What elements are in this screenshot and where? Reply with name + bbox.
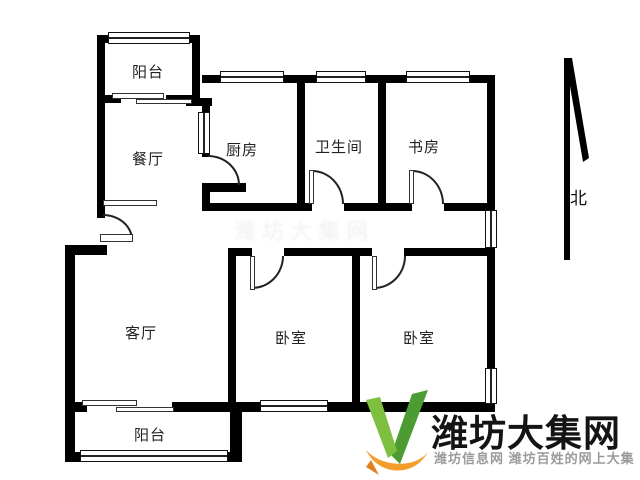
room-label-bedroom-left: 卧室	[246, 327, 336, 345]
north-label: 北	[570, 184, 600, 206]
room-label-living: 客厅	[96, 322, 186, 340]
room-label-study: 书房	[379, 136, 469, 154]
window	[406, 71, 470, 83]
door-arc	[312, 170, 344, 204]
door-leaf	[309, 170, 314, 204]
room-label-bedroom-right: 卧室	[374, 327, 464, 345]
wall	[352, 256, 360, 412]
window	[220, 71, 284, 83]
sliding-door-panel	[82, 400, 137, 406]
wall	[202, 203, 312, 211]
window	[108, 32, 190, 44]
room-label-bathroom: 卫生间	[294, 136, 384, 154]
window	[316, 71, 366, 83]
door-leaf	[100, 234, 133, 242]
sliding-door-panel	[136, 99, 192, 104]
wall	[172, 402, 235, 412]
door-arc	[252, 256, 284, 289]
faint-watermark: 潍坊大集网	[234, 214, 444, 244]
door-arc	[208, 155, 240, 185]
site-logo-icon	[364, 390, 430, 480]
window	[485, 210, 497, 248]
door-arc	[374, 256, 406, 289]
room-label-kitchen: 厨房	[197, 139, 287, 157]
door-leaf	[409, 170, 414, 204]
wall	[284, 248, 372, 256]
shelf-line	[103, 200, 157, 206]
room-label-balcony-bottom: 阳台	[105, 424, 195, 442]
door-leaf	[250, 256, 255, 290]
door-leaf	[372, 256, 377, 290]
wall	[344, 203, 412, 211]
room-label-balcony-top: 阳台	[103, 61, 193, 79]
wall	[404, 248, 495, 256]
watermark-subtitle: 潍坊信息网 潍坊百姓的网上大集	[434, 448, 635, 467]
north-arrow-icon	[552, 48, 602, 268]
sliding-door-panel	[116, 407, 174, 412]
door-arc	[412, 170, 444, 204]
wall	[65, 245, 75, 462]
wall	[192, 35, 200, 103]
room-label-dining: 餐厅	[103, 148, 193, 166]
wall	[228, 248, 236, 412]
floorplan-image: 潍坊大集网 阳台 餐厅	[0, 0, 640, 480]
window	[260, 400, 328, 412]
window	[80, 450, 228, 462]
window	[485, 368, 497, 404]
wall	[228, 248, 252, 256]
